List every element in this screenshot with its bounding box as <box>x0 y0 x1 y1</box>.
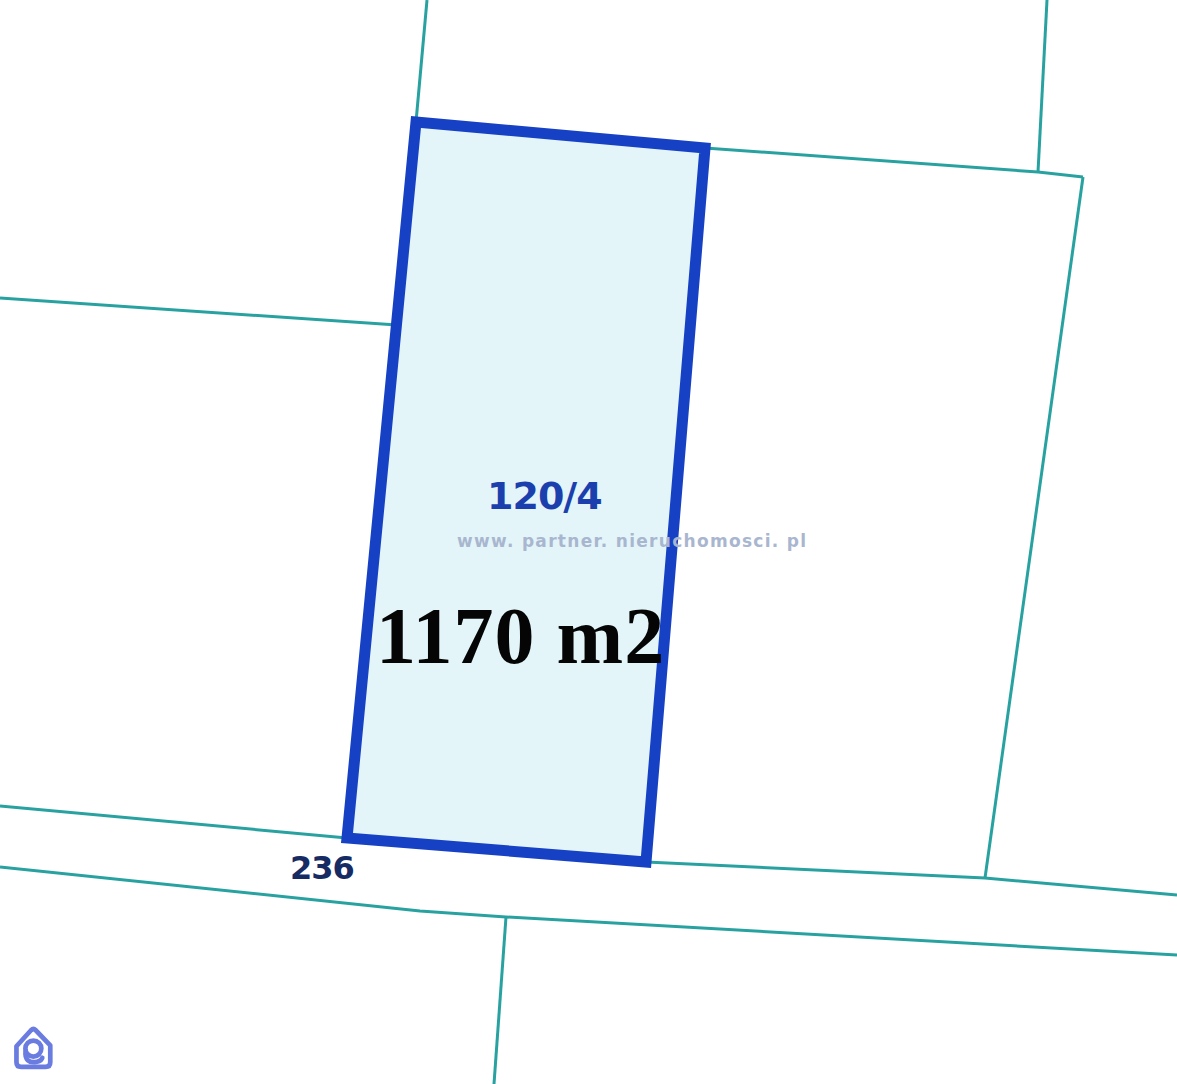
boundary-line <box>646 862 1177 895</box>
house-logo-icon <box>8 1018 70 1082</box>
boundary-line <box>1038 0 1047 172</box>
boundary-line <box>0 806 347 838</box>
road-number-label: 236 <box>290 852 354 884</box>
parcel-area-label: 1170 m2 <box>376 596 665 676</box>
boundary-line <box>705 148 1083 177</box>
parcel-number-label: 120/4 <box>487 477 602 515</box>
boundary-line <box>985 177 1083 878</box>
boundary-line <box>416 0 427 122</box>
cadastral-map: 120/4 www. partner. nieruchomosci. pl 11… <box>0 0 1177 1084</box>
boundary-line <box>494 917 506 1084</box>
watermark-text: www. partner. nieruchomosci. pl <box>457 533 807 550</box>
boundary-line <box>0 298 397 325</box>
